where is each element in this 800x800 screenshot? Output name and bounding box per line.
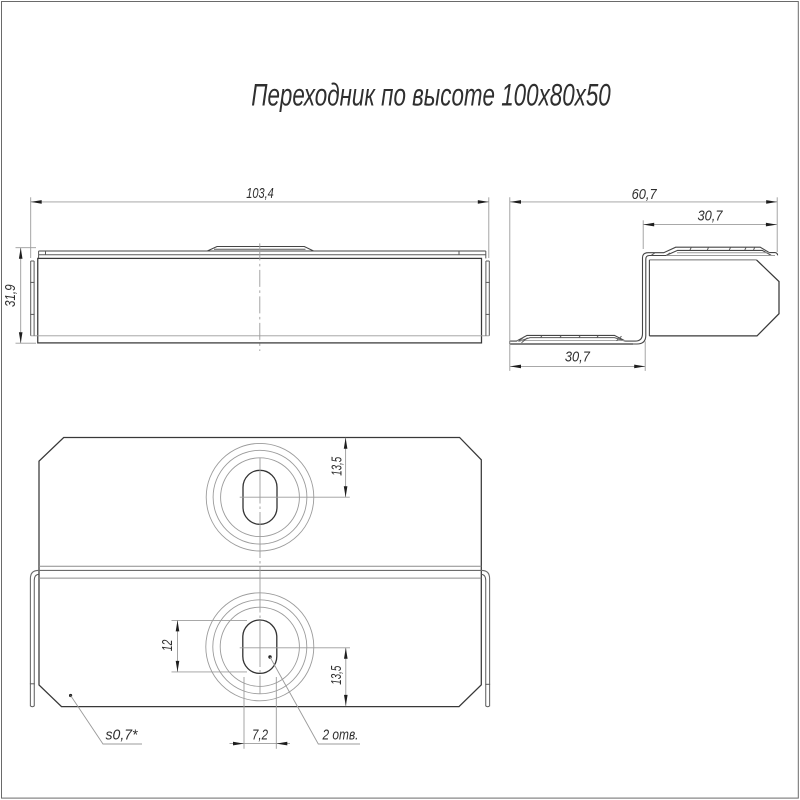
svg-text:7,2: 7,2 [252,727,268,744]
svg-text:s0,7*: s0,7* [106,727,139,744]
svg-text:12: 12 [159,639,176,651]
svg-text:60,7: 60,7 [632,186,658,203]
svg-text:13,5: 13,5 [328,456,345,475]
svg-text:Переходник по высоте 100х80х50: Переходник по высоте 100х80х50 [251,77,611,113]
svg-text:30,7: 30,7 [698,208,724,225]
svg-text:30,7: 30,7 [565,349,591,366]
svg-text:2 отв.: 2 отв. [322,727,359,744]
svg-text:31,9: 31,9 [2,284,19,307]
svg-text:103,4: 103,4 [246,185,274,202]
svg-text:13,5: 13,5 [328,665,345,684]
